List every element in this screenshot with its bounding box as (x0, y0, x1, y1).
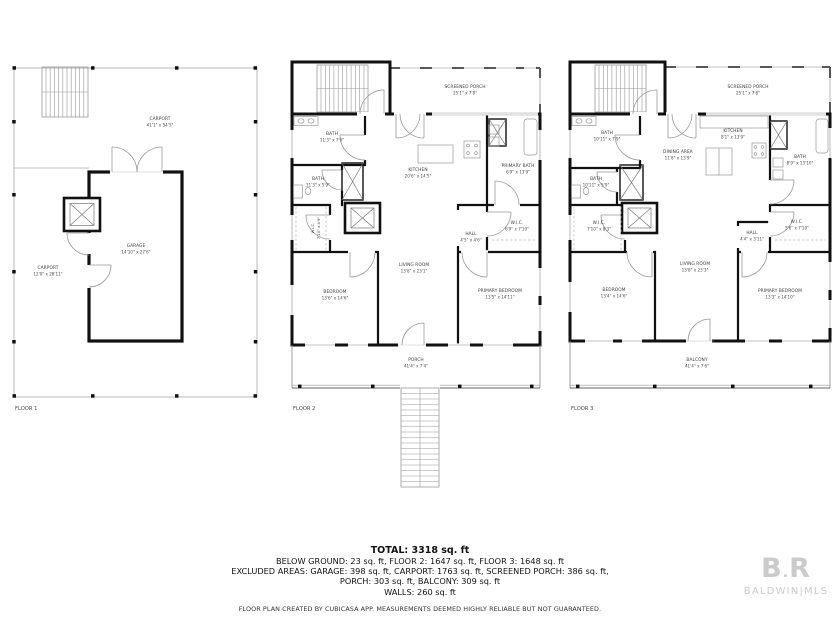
floor-1-plan: CARPORT 41'1" x 54'5" GARAGE 14'10" x 27… (12, 66, 257, 412)
closets (620, 121, 787, 200)
floor2-wic-right-label: W.I.C. (511, 220, 524, 226)
kitchen-fixtures (418, 141, 480, 163)
staircase (42, 67, 88, 117)
floor3-screened-porch-label: SCREENED PORCH (727, 84, 768, 90)
floor2-primary-bath-dims: 6'9" x 13'9" (506, 170, 530, 175)
floor3-living-room-dims: 13'8" x 23'3" (682, 268, 709, 273)
floor2-bedroom-label: BEDROOM (323, 289, 346, 295)
baldwin-mls-monogram: B.R (740, 556, 832, 586)
cubicasa-disclaimer: FLOOR PLAN CREATED BY CUBICASA APP. MEAS… (0, 605, 840, 613)
elevator (64, 198, 100, 231)
floor2-bedroom-dims: 13'6" x 14'6" (322, 296, 349, 301)
floor1-carport-left-dims: 12'0" x 28'11" (33, 272, 62, 277)
elevator (622, 203, 657, 233)
area-summary: TOTAL: 3318 sq. ft BELOW GROUND: 23 sq. … (0, 545, 840, 613)
floor1-carport-top-label: CARPORT (150, 116, 171, 122)
exterior-stairs (401, 388, 439, 487)
floor2-wic-left-label: W.I.C. (310, 223, 315, 234)
floor2-wic-right-dims: 6'9" x 7'10" (505, 227, 529, 232)
logo-letter-r: R (789, 553, 811, 584)
floor2-screened-porch-label: SCREENED PORCH (444, 84, 485, 90)
floor1-garage-dims: 14'10" x 27'6" (121, 250, 150, 255)
floor2-porch-dims: 41'4" x 7'4" (404, 364, 428, 369)
floor3-bedroom-dims: 13'4" x 14'6" (601, 294, 628, 299)
floor3-bath3-label: BATH (794, 154, 806, 160)
floor3-wic-right-dims: 5'6" x 7'10" (785, 226, 809, 231)
floor3-living-room-label: LIVING ROOM (680, 261, 711, 267)
porch-balcony-line: PORCH: 303 sq. ft, BALCONY: 309 sq. ft (0, 576, 840, 586)
floor2-bath2-label: BATH (312, 176, 324, 182)
floor3-primary-bedroom-label: PRIMARY BEDROOM (758, 288, 802, 294)
floor1-garage-label: GARAGE (127, 243, 146, 249)
floor3-bath2-label: BATH (590, 176, 602, 182)
floor2-bath1-dims: 11'3" x 7'9" (320, 138, 344, 143)
floor1-tag: FLOOR 1 (15, 406, 37, 412)
garage-double-door (112, 147, 162, 172)
floor1-carport-left-label: CARPORT (38, 265, 59, 271)
floor3-bedroom-label: BEDROOM (602, 287, 625, 293)
floor3-balcony-label: BALCONY (686, 357, 707, 363)
floor1-carport-top-dims: 41'1" x 54'5" (147, 123, 174, 128)
floor3-hall-label: HALL (746, 230, 758, 236)
floor3-dining-dims: 11'8" x 13'9" (665, 156, 692, 161)
floor2-wic-left-dims: 7'10" x 4'9" (316, 217, 321, 240)
walls-line: WALLS: 260 sq. ft (0, 587, 840, 597)
floor3-bath2-dims: 10'11" x 5'9" (583, 183, 610, 188)
floor3-balcony-dims: 41'4" x 7'6" (685, 364, 709, 369)
logo-letter-b: B (761, 553, 783, 584)
floor2-porch-label: PORCH (408, 357, 423, 363)
excluded-areas-line: EXCLUDED AREAS: GARAGE: 398 sq. ft, CARP… (0, 566, 840, 576)
floor3-screened-porch-dims: 25'1" x 7'8" (736, 91, 760, 96)
garage-walls (89, 172, 182, 341)
floor3-wic-left-label: W.I.C. (593, 220, 606, 226)
floor3-wic-right-label: W.I.C. (791, 219, 804, 225)
floor2-kitchen-label: KITCHEN (408, 167, 427, 173)
floor2-tag: FLOOR 2 (293, 406, 315, 412)
carport-posts (12, 66, 257, 398)
floor2-primary-bath-label: PRIMARY BATH (502, 163, 535, 169)
floor3-wic-left-dims: 7'10" x 8'3" (587, 227, 611, 232)
floor2-screened-porch-dims: 25'1" x 7'8" (453, 91, 477, 96)
total-area: TOTAL: 3318 sq. ft (0, 545, 840, 556)
floor3-dining-label: DINING AREA (663, 149, 693, 155)
floor2-hall-label: HALL (465, 231, 477, 237)
floor3-kitchen-label: KITCHEN (723, 128, 742, 134)
floor3-bath1-dims: 10'11" x 7'9" (594, 137, 621, 142)
floor2-living-room-dims: 13'8" x 23'1" (401, 269, 428, 274)
elevator (345, 203, 380, 233)
floor3-tag: FLOOR 3 (571, 406, 593, 412)
floor2-bath1-label: BATH (326, 131, 338, 137)
floor-plan-drawing: CARPORT 41'1" x 54'5" GARAGE 14'10" x 27… (0, 0, 840, 630)
floor-3-plan: SCREENED PORCH 25'1" x 7'8" BATH 10'11" … (568, 62, 831, 412)
kitchen-fixtures (700, 116, 768, 175)
floor2-kitchen-dims: 20'6" x 14'5" (405, 174, 432, 179)
staircase (317, 65, 368, 112)
floor3-bath3-dims: 8'9" x 13'10" (787, 161, 814, 166)
floor2-bath2-dims: 11'3" x 5'9" (306, 183, 330, 188)
baldwin-mls-wordmark: BALDWIN|MLS (740, 586, 832, 597)
floor3-primary-bedroom-dims: 13'3" x 14'10" (765, 295, 794, 300)
baldwin-mls-logo: B.R BALDWIN|MLS (740, 556, 832, 597)
floor3-kitchen-dims: 8'1" x 13'9" (721, 135, 745, 140)
floor3-hall-dims: 4'4" x 3'11" (740, 237, 764, 242)
floor2-hall-dims: 4'5" x 4'6" (460, 238, 482, 243)
floor2-primary-bedroom-dims: 13'5" x 14'11" (485, 295, 514, 300)
floor-plan-page: CARPORT 41'1" x 54'5" GARAGE 14'10" x 27… (0, 0, 840, 630)
staircase (595, 65, 646, 112)
floor3-bath1-label: BATH (601, 130, 613, 136)
floor2-primary-bedroom-label: PRIMARY BEDROOM (478, 288, 522, 294)
floor2-living-room-label: LIVING ROOM (399, 262, 430, 268)
floor-2-plan: SCREENED PORCH 25'1" x 7'8" BATH 11'3" x… (290, 62, 541, 487)
floor-areas-line: BELOW GROUND: 23 sq. ft, FLOOR 2: 1647 s… (0, 556, 840, 566)
